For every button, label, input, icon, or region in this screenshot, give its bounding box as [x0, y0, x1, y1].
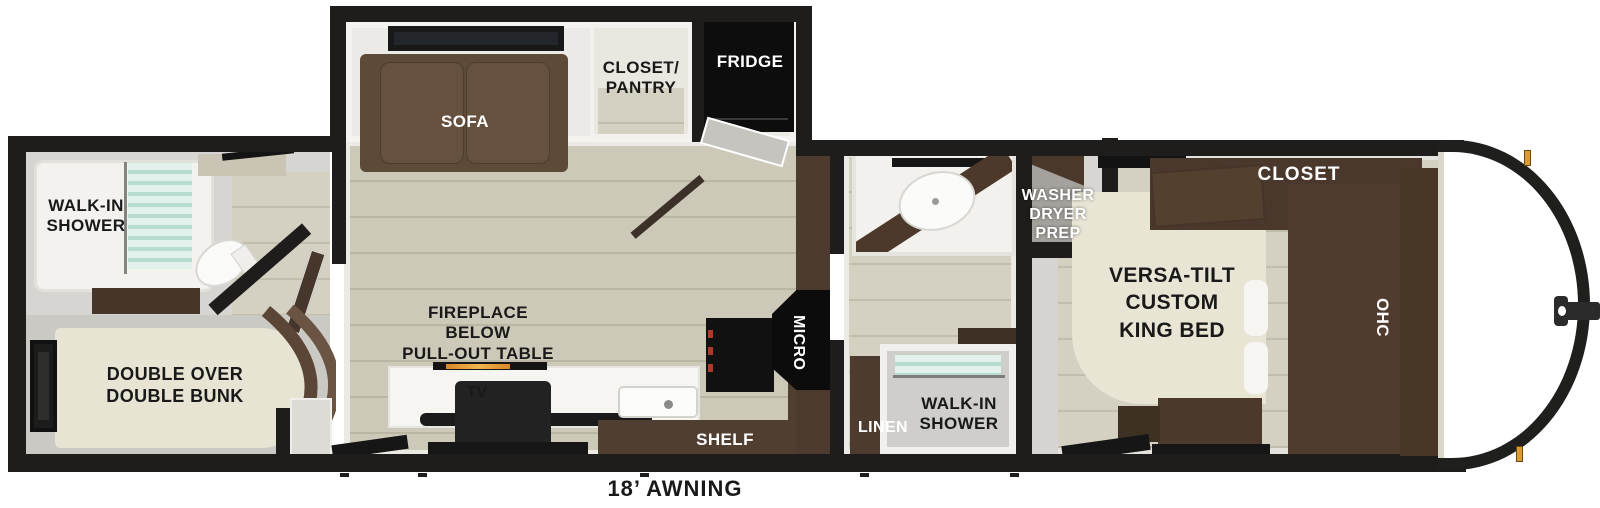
awning-tick: [860, 473, 869, 477]
wall-slideout-right: [796, 6, 812, 152]
awning-tick: [340, 473, 349, 477]
wall-left-rear: [8, 136, 26, 472]
wall-bath-left-bottom: [830, 340, 844, 454]
hitch-hole: [1558, 306, 1566, 316]
bunk-wall-segment: [276, 408, 290, 456]
sofa-window: [388, 26, 564, 51]
label-king-bed: VERSA-TILT CUSTOM KING BED: [1058, 262, 1286, 344]
stove-knob-1: [708, 330, 713, 338]
kitchen-sink: [618, 386, 698, 418]
mid-shower-glass-shelves: [895, 355, 1001, 375]
stove-knob-3: [708, 364, 713, 372]
label-mid-walk-in-shower: WALK-IN SHOWER: [893, 394, 1025, 435]
label-tv: TV: [432, 383, 522, 402]
marker-light-bottom: [1516, 446, 1523, 462]
fridge-appliance: [704, 14, 794, 132]
label-fireplace: FIREPLACE BELOW PULL-OUT TABLE: [380, 303, 576, 364]
label-ohc: OHC: [1370, 284, 1392, 350]
bed-pillow-2: [1244, 342, 1268, 394]
label-double-bunk: DOUBLE OVER DOUBLE BUNK: [55, 364, 295, 407]
label-fridge: FRIDGE: [706, 52, 794, 72]
label-closet: CLOSET: [1240, 164, 1358, 187]
mid-bath-drain: [932, 198, 939, 205]
stove-knob-2: [708, 347, 713, 355]
label-closet-pantry: CLOSET/ PANTRY: [588, 58, 694, 99]
label-washer-dryer-prep: WASHER DRYER PREP: [1008, 186, 1108, 244]
wall-top-rear: [8, 136, 346, 152]
wall-slideout-left: [330, 6, 346, 152]
fireplace-flame: [446, 364, 510, 369]
awning-tick: [1010, 473, 1019, 477]
label-shelf: SHELF: [665, 430, 785, 450]
label-sofa: SOFA: [395, 112, 535, 132]
label-micro: MICRO: [786, 300, 808, 386]
mid-bath-vanity: [852, 152, 1016, 256]
kitchen-faucet: [664, 400, 673, 409]
bedroom-end-panel: [1400, 168, 1442, 456]
floorplan: WALK-IN SHOWER DOUBLE OVER DOUBLE BUNK S…: [0, 0, 1600, 508]
bunk-window-glass: [38, 352, 49, 420]
marker-light-top: [1524, 150, 1531, 166]
label-awning: 18’ AWNING: [500, 476, 850, 502]
wall-top-main: [796, 140, 1464, 156]
mid-shower-rod: [893, 375, 1005, 378]
rear-bath-cabinet: [92, 288, 200, 314]
bedroom-left-wall-liner: [1032, 256, 1058, 454]
wall-slideout-top: [330, 6, 812, 22]
bunk-step: [290, 398, 332, 456]
wall-bath-left-top: [830, 152, 844, 254]
stove: [706, 318, 774, 392]
wall-rear-divider: [332, 152, 346, 264]
wall-bottom: [8, 454, 1466, 472]
label-rear-walk-in-shower: WALK-IN SHOWER: [28, 196, 144, 237]
bed-step-cabinet: [1158, 398, 1262, 444]
awning-tick: [418, 473, 427, 477]
